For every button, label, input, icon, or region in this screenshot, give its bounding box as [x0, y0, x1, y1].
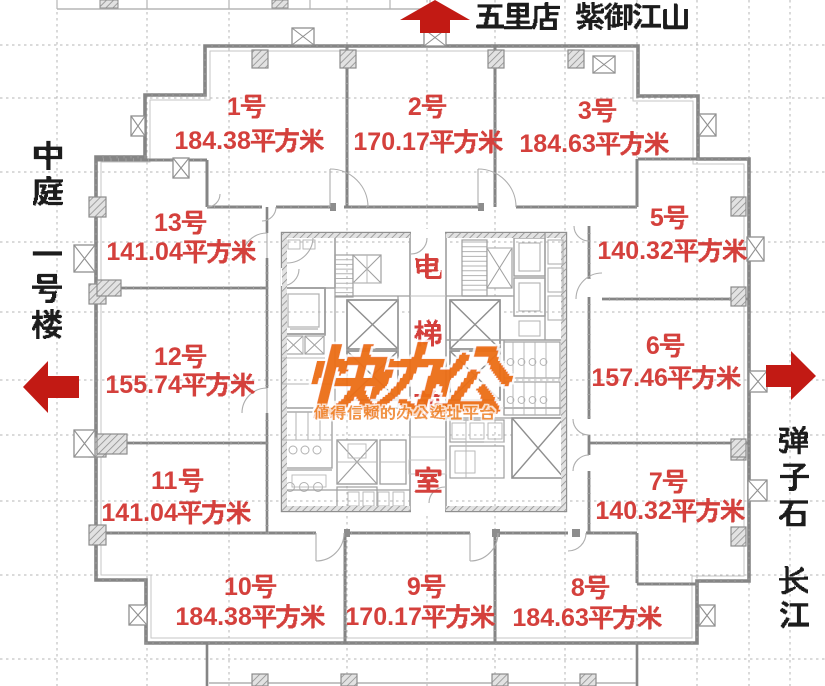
svg-text:184.38: 184.38	[175, 603, 252, 631]
svg-text:184.38: 184.38	[174, 127, 251, 155]
svg-text:7: 7	[649, 468, 663, 496]
svg-text:155.74: 155.74	[105, 371, 182, 399]
svg-text:141.04: 141.04	[101, 499, 178, 527]
svg-text:141.04: 141.04	[106, 238, 183, 266]
svg-text:3: 3	[578, 97, 592, 125]
svg-text:170.17: 170.17	[353, 128, 429, 156]
svg-text:184.63: 184.63	[512, 604, 588, 632]
svg-text:170.17: 170.17	[345, 603, 421, 631]
svg-text:8: 8	[571, 574, 585, 602]
svg-text:12: 12	[154, 343, 182, 371]
svg-text:140.32: 140.32	[595, 497, 671, 525]
svg-text:157.46: 157.46	[591, 364, 667, 392]
svg-text:184.63: 184.63	[519, 130, 595, 158]
svg-text:140.32: 140.32	[597, 237, 673, 265]
svg-text:11: 11	[151, 467, 178, 495]
svg-text:6: 6	[646, 332, 660, 360]
svg-text:2: 2	[408, 93, 422, 121]
svg-text:1: 1	[227, 93, 241, 121]
svg-text:9: 9	[407, 573, 421, 601]
svg-text:10: 10	[224, 573, 252, 601]
svg-text:5: 5	[650, 204, 664, 232]
svg-text:13: 13	[154, 209, 182, 237]
